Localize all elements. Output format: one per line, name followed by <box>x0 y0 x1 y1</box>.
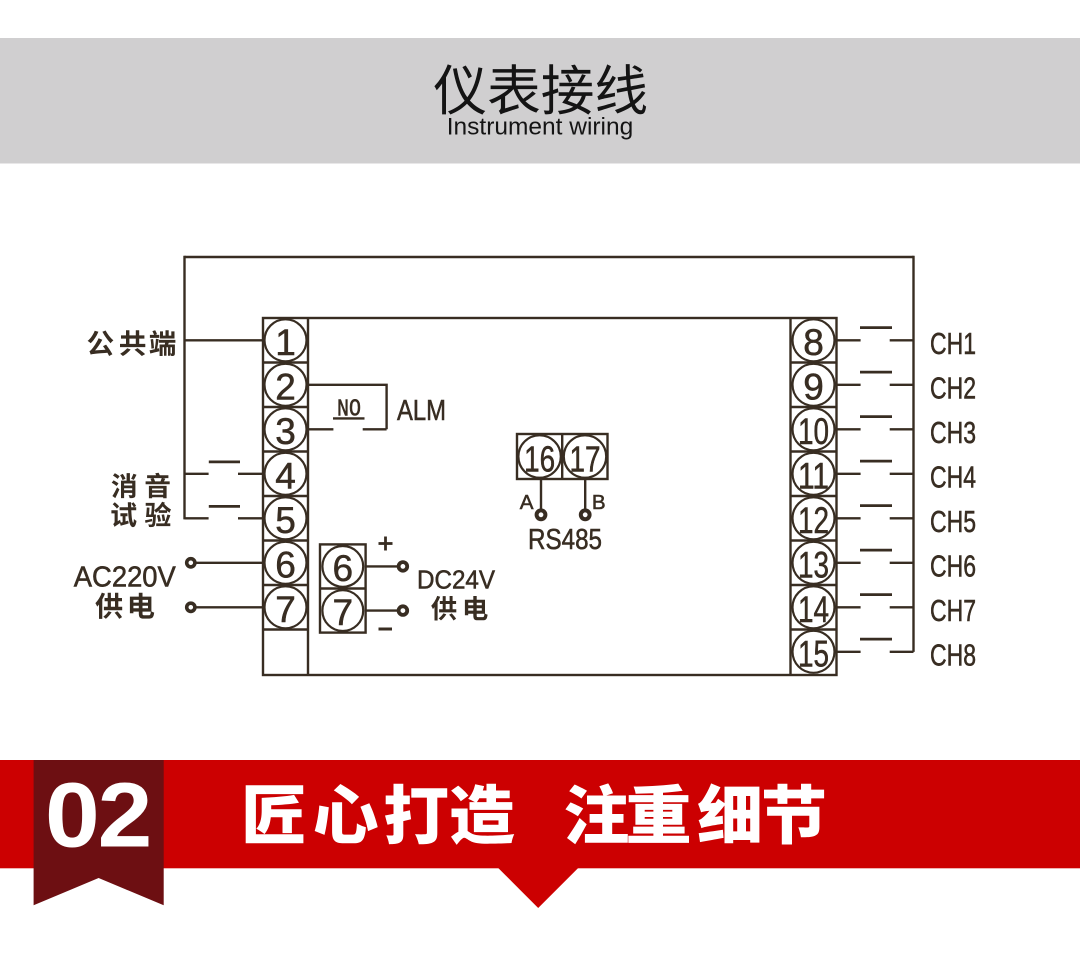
svg-text:6: 6 <box>333 548 354 589</box>
svg-text:ALM: ALM <box>397 395 446 427</box>
svg-text:B: B <box>592 491 606 514</box>
svg-text:16: 16 <box>524 438 555 479</box>
svg-text:7: 7 <box>333 592 354 633</box>
svg-text:02: 02 <box>45 764 150 866</box>
svg-text:10: 10 <box>798 411 829 452</box>
svg-text:CH7: CH7 <box>930 594 976 628</box>
svg-text:1: 1 <box>275 322 296 363</box>
svg-text:8: 8 <box>803 322 824 363</box>
svg-text:RS485: RS485 <box>528 524 602 556</box>
svg-text:14: 14 <box>798 589 829 630</box>
svg-text:CH2: CH2 <box>930 372 976 406</box>
svg-text:A: A <box>520 491 534 514</box>
svg-text:CH8: CH8 <box>930 639 976 673</box>
svg-text:CH5: CH5 <box>930 505 976 539</box>
svg-text:CH6: CH6 <box>930 550 976 584</box>
svg-text:2: 2 <box>275 366 296 407</box>
svg-text:5: 5 <box>275 500 296 541</box>
svg-text:17: 17 <box>570 438 601 479</box>
svg-text:AC220V: AC220V <box>74 561 176 593</box>
svg-text:15: 15 <box>798 633 829 674</box>
svg-text:11: 11 <box>798 455 829 496</box>
svg-text:9: 9 <box>803 366 824 407</box>
svg-text:DC24V: DC24V <box>417 564 496 594</box>
svg-text:13: 13 <box>798 544 829 585</box>
svg-text:3: 3 <box>275 411 296 452</box>
svg-text:4: 4 <box>275 455 296 496</box>
svg-text:6: 6 <box>275 544 296 585</box>
svg-text:CH3: CH3 <box>930 416 976 450</box>
svg-text:7: 7 <box>275 589 296 630</box>
svg-text:CH1: CH1 <box>930 327 976 361</box>
svg-text:Instrument wiring: Instrument wiring <box>447 114 634 141</box>
svg-text:12: 12 <box>798 500 829 541</box>
svg-text:CH4: CH4 <box>930 461 976 495</box>
